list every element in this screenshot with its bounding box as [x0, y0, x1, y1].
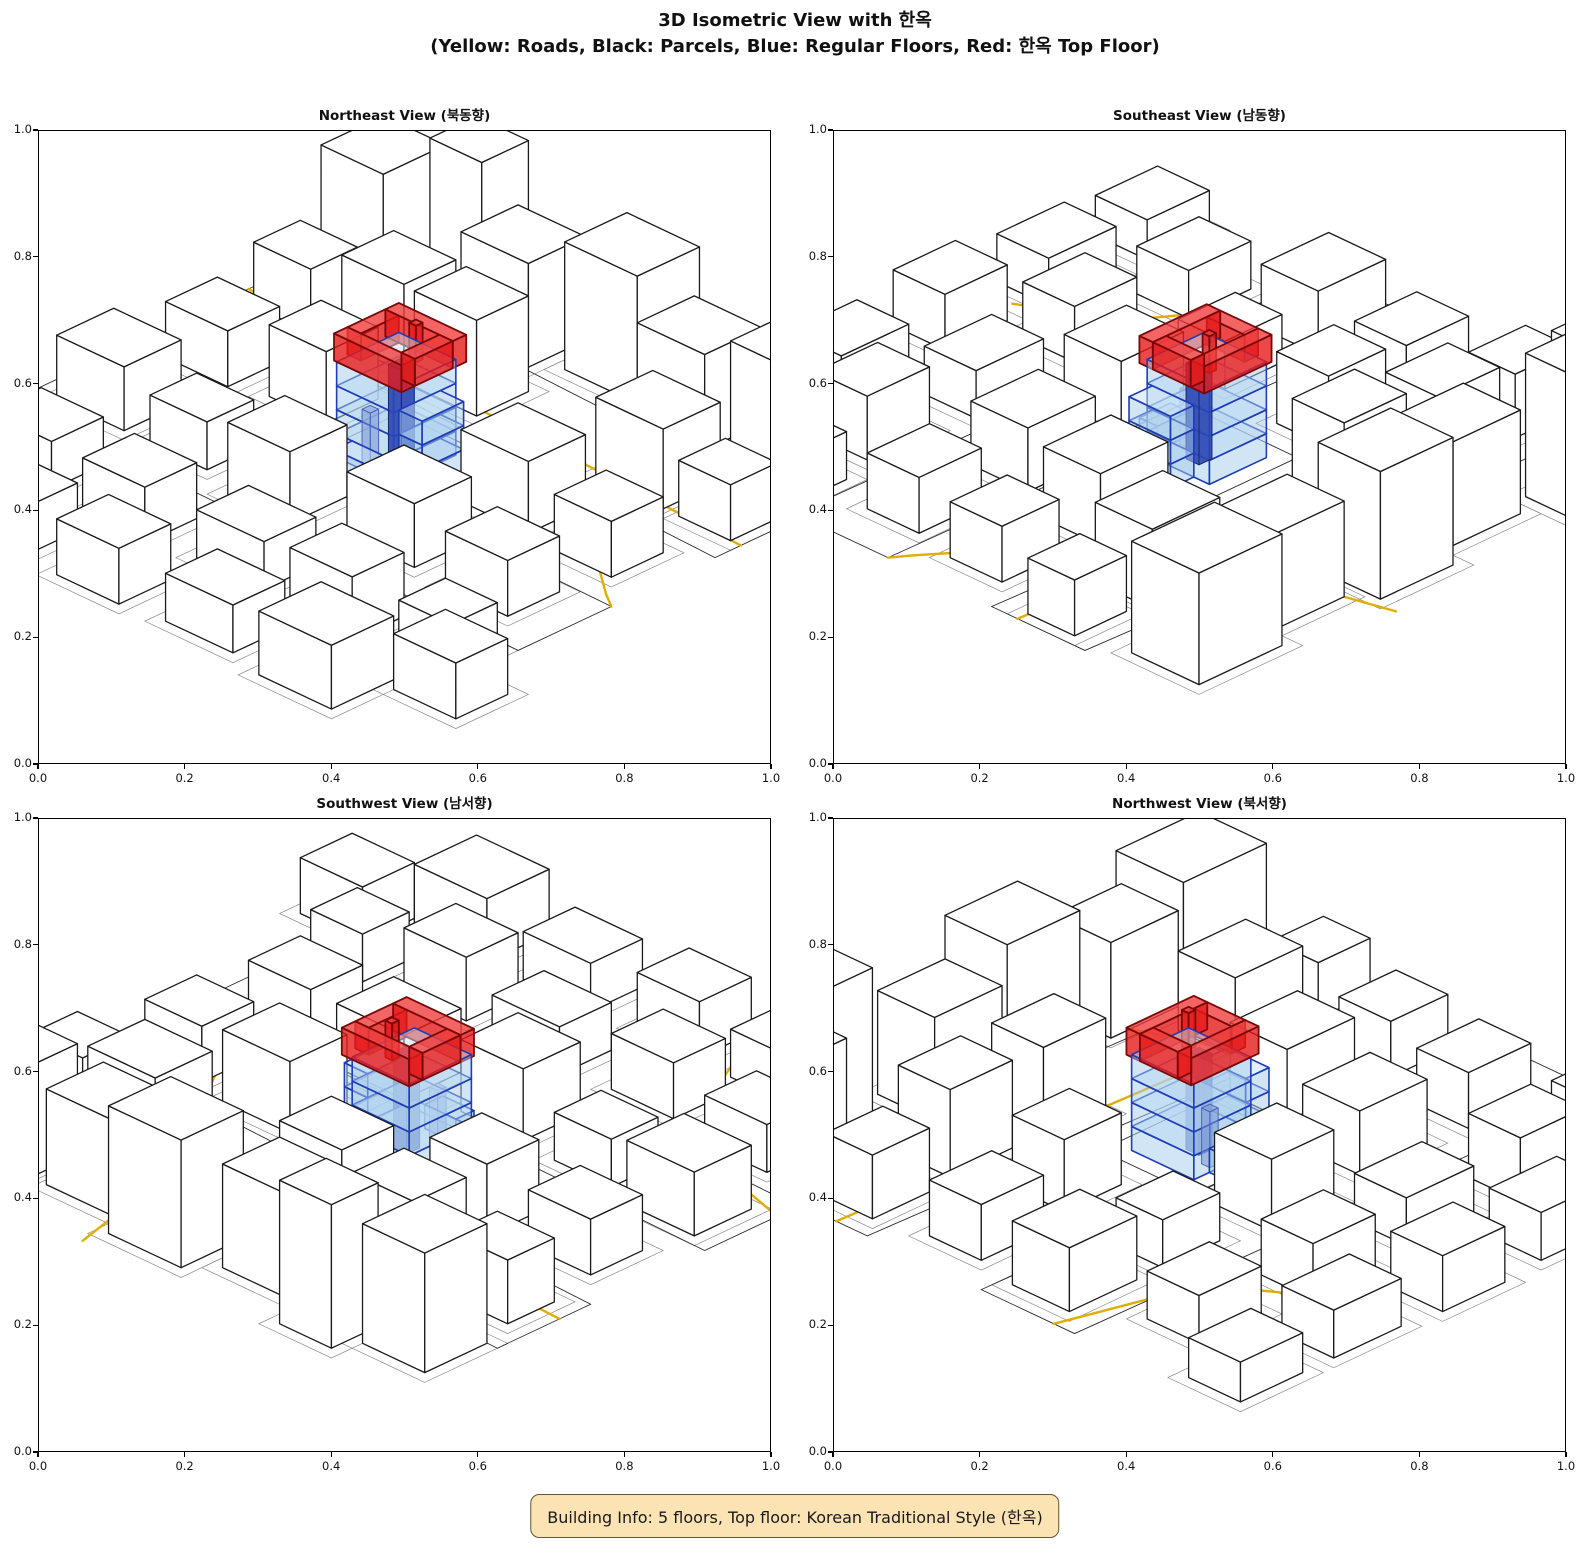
y-tick-label: 0.0 — [793, 1444, 827, 1458]
x-tick-label: 0.0 — [815, 1459, 851, 1473]
y-tick-label: 0.2 — [793, 1317, 827, 1331]
x-tick-mark — [184, 764, 185, 769]
x-tick-mark — [770, 1452, 771, 1457]
x-tick-label: 1.0 — [1548, 1459, 1584, 1473]
y-tick-mark — [33, 510, 38, 511]
y-tick-mark — [828, 256, 833, 257]
buildings-layer — [833, 818, 1566, 1402]
y-tick-label: 0.8 — [793, 937, 827, 951]
y-tick-label: 0.8 — [0, 249, 32, 263]
y-tick-label: 1.0 — [793, 122, 827, 136]
subplot-title-northwest: Northwest View (북서향) — [833, 792, 1566, 812]
x-tick-mark — [37, 764, 38, 769]
y-tick-label: 0.6 — [0, 1064, 32, 1078]
y-tick-label: 0.0 — [793, 756, 827, 770]
x-tick-label: 0.6 — [1255, 771, 1291, 785]
y-tick-mark — [33, 383, 38, 384]
figure: 3D Isometric View with 한옥 (Yellow: Roads… — [0, 0, 1590, 1560]
isometric-scene-southwest — [38, 818, 771, 1452]
x-tick-label: 1.0 — [753, 771, 789, 785]
x-tick-label: 0.6 — [460, 771, 496, 785]
x-tick-label: 0.8 — [606, 1459, 642, 1473]
y-tick-mark — [828, 1198, 833, 1199]
x-tick-label: 0.8 — [1401, 1459, 1437, 1473]
x-tick-mark — [832, 764, 833, 769]
x-tick-mark — [1272, 764, 1273, 769]
y-tick-mark — [33, 763, 38, 764]
x-tick-mark — [477, 764, 478, 769]
suptitle-line-1: 3D Isometric View with 한옥 — [0, 8, 1590, 34]
x-tick-mark — [1419, 1452, 1420, 1457]
y-tick-mark — [828, 637, 833, 638]
x-tick-mark — [1272, 1452, 1273, 1457]
y-tick-mark — [828, 1071, 833, 1072]
buildings-layer — [38, 130, 771, 719]
y-tick-label: 0.2 — [0, 629, 32, 643]
x-tick-label: 0.6 — [1255, 1459, 1291, 1473]
subplot-southeast: Southeast View (남동향) 0.00.20.40.60.81.00… — [833, 130, 1566, 764]
x-tick-mark — [624, 764, 625, 769]
subplot-title-southeast: Southeast View (남동향) — [833, 104, 1566, 124]
x-tick-label: 0.0 — [20, 1459, 56, 1473]
x-tick-label: 0.2 — [167, 1459, 203, 1473]
buildings-layer — [38, 833, 771, 1372]
building-info-box: Building Info: 5 floors, Top floor: Kore… — [530, 1494, 1059, 1538]
x-tick-label: 0.2 — [167, 771, 203, 785]
subplot-title-northeast: Northeast View (북동향) — [38, 104, 771, 124]
y-tick-mark — [33, 129, 38, 130]
y-tick-mark — [33, 1325, 38, 1326]
x-tick-mark — [331, 764, 332, 769]
y-tick-label: 1.0 — [0, 122, 32, 136]
x-tick-label: 0.4 — [313, 1459, 349, 1473]
y-tick-mark — [828, 817, 833, 818]
y-tick-label: 1.0 — [0, 810, 32, 824]
y-tick-mark — [828, 1325, 833, 1326]
y-tick-mark — [828, 1451, 833, 1452]
y-tick-label: 0.4 — [0, 1190, 32, 1204]
x-tick-label: 0.0 — [20, 771, 56, 785]
y-tick-label: 0.2 — [793, 629, 827, 643]
x-tick-label: 0.4 — [1108, 1459, 1144, 1473]
x-tick-mark — [624, 1452, 625, 1457]
y-tick-mark — [828, 944, 833, 945]
isometric-scene-northeast — [38, 130, 771, 764]
subplot-title-southwest: Southwest View (남서향) — [38, 792, 771, 812]
x-tick-mark — [1126, 1452, 1127, 1457]
x-tick-label: 0.8 — [1401, 771, 1437, 785]
y-tick-label: 0.0 — [0, 756, 32, 770]
y-tick-label: 0.4 — [793, 502, 827, 516]
x-tick-mark — [770, 764, 771, 769]
figure-suptitle: 3D Isometric View with 한옥 (Yellow: Roads… — [0, 8, 1590, 60]
x-tick-mark — [37, 1452, 38, 1457]
y-tick-label: 0.6 — [793, 376, 827, 390]
y-tick-mark — [828, 129, 833, 130]
y-tick-mark — [828, 763, 833, 764]
x-tick-mark — [979, 1452, 980, 1457]
isometric-scene-northwest — [833, 818, 1566, 1452]
y-tick-label: 0.8 — [0, 937, 32, 951]
x-tick-mark — [832, 1452, 833, 1457]
y-tick-label: 0.2 — [0, 1317, 32, 1331]
y-tick-label: 0.6 — [793, 1064, 827, 1078]
y-tick-mark — [33, 944, 38, 945]
x-tick-mark — [331, 1452, 332, 1457]
x-tick-mark — [1565, 764, 1566, 769]
y-tick-mark — [33, 1198, 38, 1199]
subplot-northwest: Northwest View (북서향) 0.00.20.40.60.81.00… — [833, 818, 1566, 1452]
y-tick-mark — [33, 1071, 38, 1072]
x-tick-label: 0.4 — [313, 771, 349, 785]
y-tick-mark — [33, 637, 38, 638]
x-tick-label: 0.6 — [460, 1459, 496, 1473]
x-tick-label: 0.8 — [606, 771, 642, 785]
y-tick-label: 0.6 — [0, 376, 32, 390]
y-tick-mark — [33, 1451, 38, 1452]
y-tick-label: 0.4 — [793, 1190, 827, 1204]
x-tick-mark — [477, 1452, 478, 1457]
y-tick-label: 0.0 — [0, 1444, 32, 1458]
y-tick-mark — [33, 817, 38, 818]
x-tick-mark — [1565, 1452, 1566, 1457]
y-tick-mark — [828, 383, 833, 384]
x-tick-label: 0.2 — [962, 1459, 998, 1473]
suptitle-line-2: (Yellow: Roads, Black: Parcels, Blue: Re… — [0, 34, 1590, 60]
x-tick-mark — [1126, 764, 1127, 769]
y-tick-mark — [828, 510, 833, 511]
y-tick-label: 1.0 — [793, 810, 827, 824]
y-tick-label: 0.8 — [793, 249, 827, 263]
x-tick-label: 0.4 — [1108, 771, 1144, 785]
y-tick-mark — [33, 256, 38, 257]
x-tick-mark — [184, 1452, 185, 1457]
y-tick-label: 0.4 — [0, 502, 32, 516]
x-tick-label: 1.0 — [1548, 771, 1584, 785]
buildings-layer — [833, 166, 1566, 685]
x-tick-label: 0.2 — [962, 771, 998, 785]
x-tick-mark — [979, 764, 980, 769]
isometric-scene-southeast — [833, 130, 1566, 764]
subplot-northeast: Northeast View (북동향) 0.00.20.40.60.81.00… — [38, 130, 771, 764]
subplot-southwest: Southwest View (남서향) 0.00.20.40.60.81.00… — [38, 818, 771, 1452]
x-tick-mark — [1419, 764, 1420, 769]
x-tick-label: 0.0 — [815, 771, 851, 785]
x-tick-label: 1.0 — [753, 1459, 789, 1473]
